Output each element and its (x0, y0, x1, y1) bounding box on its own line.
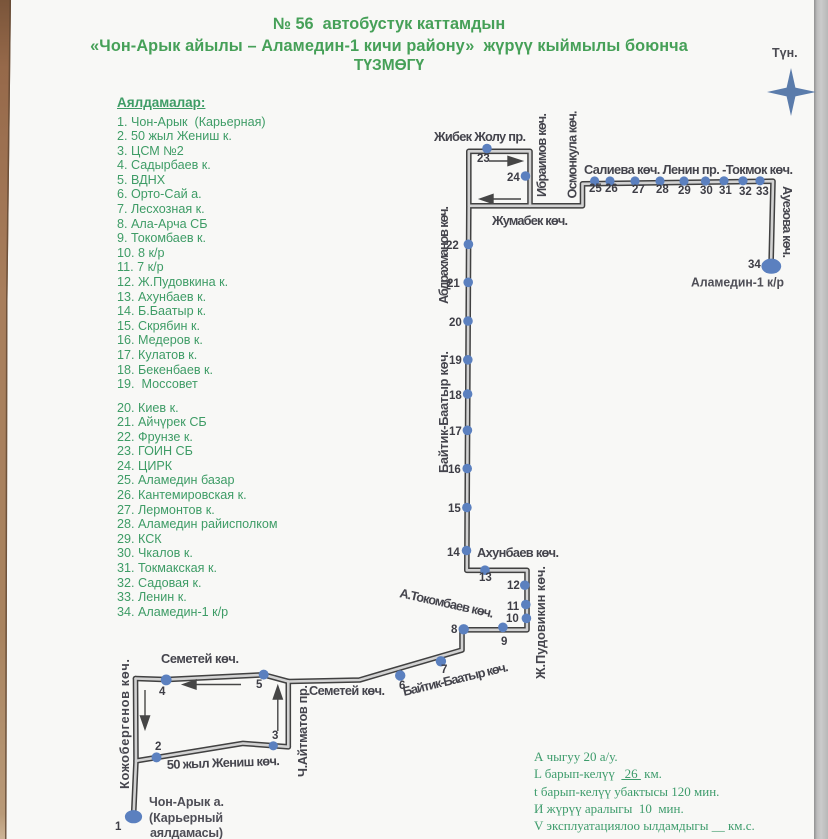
svg-text:20: 20 (449, 317, 462, 329)
svg-text:31: 31 (719, 185, 732, 197)
svg-text:8: 8 (451, 624, 458, 636)
svg-text:Ч.Айтматов пр.: Ч.Айтматов пр. (295, 685, 310, 777)
svg-text:24: 24 (507, 172, 520, 184)
svg-text:23: 23 (477, 153, 490, 165)
svg-text:А.Токомбаев көч.: А.Токомбаев көч. (398, 585, 495, 620)
svg-text:Чон-Арык а.: Чон-Арык а. (149, 795, 224, 809)
svg-text:1: 1 (115, 821, 122, 833)
svg-text:Байтик-Баатыр көч.: Байтик-Баатыр көч. (436, 351, 451, 473)
svg-text:Жумабек көч.: Жумабек көч. (491, 213, 568, 228)
svg-text:25: 25 (589, 183, 602, 195)
svg-text:33: 33 (756, 186, 769, 198)
svg-text:32: 32 (739, 186, 752, 198)
svg-text:Ибраимов көч.: Ибраимов көч. (534, 113, 549, 197)
svg-text:29: 29 (678, 185, 691, 197)
svg-text:Кожобергенов көч.: Кожобергенов көч. (117, 659, 132, 789)
svg-text:30: 30 (700, 185, 713, 197)
svg-text:13: 13 (479, 572, 492, 584)
svg-text:26: 26 (605, 183, 618, 195)
svg-text:5: 5 (256, 679, 263, 691)
svg-text:18: 18 (449, 390, 462, 402)
svg-text:50 жыл Жениш көч.: 50 жыл Жениш көч. (167, 753, 280, 772)
svg-text:Ж.Пудовикин көч.: Ж.Пудовикин көч. (533, 566, 548, 680)
svg-text:9: 9 (501, 636, 507, 648)
svg-text:10: 10 (506, 613, 519, 625)
svg-text:Семетей көч.: Семетей көч. (309, 683, 385, 698)
svg-text:12: 12 (507, 580, 520, 592)
svg-text:27: 27 (632, 184, 645, 196)
svg-text:11: 11 (507, 601, 520, 613)
svg-text:3: 3 (272, 730, 278, 742)
svg-text:Ахунбаев көч.: Ахунбаев көч. (477, 545, 559, 560)
svg-text:4: 4 (159, 686, 166, 698)
svg-text:28: 28 (656, 184, 669, 196)
svg-text:аялдамасы): аялдамасы) (150, 826, 223, 839)
svg-text:Семетей көч.: Семетей көч. (161, 651, 239, 666)
svg-text:Ауезова көч.: Ауезова көч. (780, 186, 795, 258)
svg-text:Жибек Жолу пр.: Жибек Жолу пр. (433, 129, 526, 144)
svg-text:2: 2 (155, 741, 161, 753)
svg-text:34: 34 (748, 259, 761, 271)
svg-text:Абдрахманов көч.: Абдрахманов көч. (436, 206, 451, 304)
svg-text:Аламедин-1 к/р: Аламедин-1 к/р (691, 276, 784, 290)
svg-text:14: 14 (447, 547, 460, 559)
svg-text:Салиева көч. Ленин пр. -Токмок: Салиева көч. Ленин пр. -Токмок көч. (584, 162, 793, 177)
svg-text:Осмонкула көч.: Осмонкула көч. (565, 111, 580, 199)
svg-text:(Карьерный: (Карьерный (149, 811, 223, 825)
svg-text:15: 15 (448, 503, 461, 515)
